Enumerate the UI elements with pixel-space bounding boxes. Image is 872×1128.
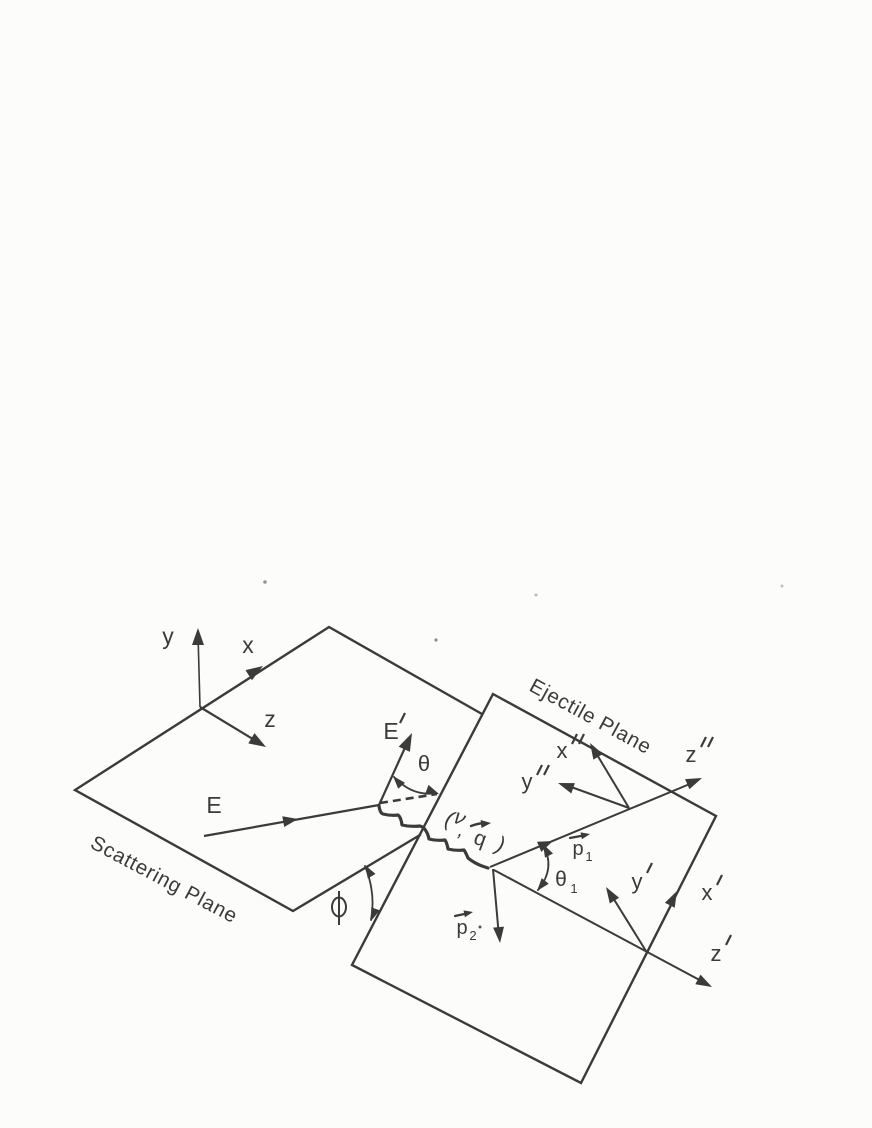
svg-text:θ: θ xyxy=(555,868,567,891)
svg-text:z: z xyxy=(711,941,722,966)
svg-text:y: y xyxy=(162,623,174,649)
svg-text:p: p xyxy=(456,917,467,939)
svg-text:θ: θ xyxy=(418,751,430,776)
svg-text:y: y xyxy=(632,869,643,894)
svg-text:z: z xyxy=(264,706,276,732)
svg-text:E: E xyxy=(383,718,398,744)
svg-text:1: 1 xyxy=(570,881,577,896)
svg-text:): ) xyxy=(491,832,510,857)
svg-text:Scattering Plane: Scattering Plane xyxy=(87,831,242,928)
svg-text:y: y xyxy=(522,769,533,794)
svg-text:q: q xyxy=(471,826,490,852)
svg-text:E: E xyxy=(206,792,221,818)
svg-text:z: z xyxy=(686,742,697,767)
svg-text:x: x xyxy=(557,738,568,763)
svg-text:1: 1 xyxy=(585,849,592,864)
svg-text:2: 2 xyxy=(469,928,476,943)
svg-text:p: p xyxy=(572,838,583,860)
svg-text:x: x xyxy=(242,632,254,658)
svg-text:x: x xyxy=(702,880,713,905)
